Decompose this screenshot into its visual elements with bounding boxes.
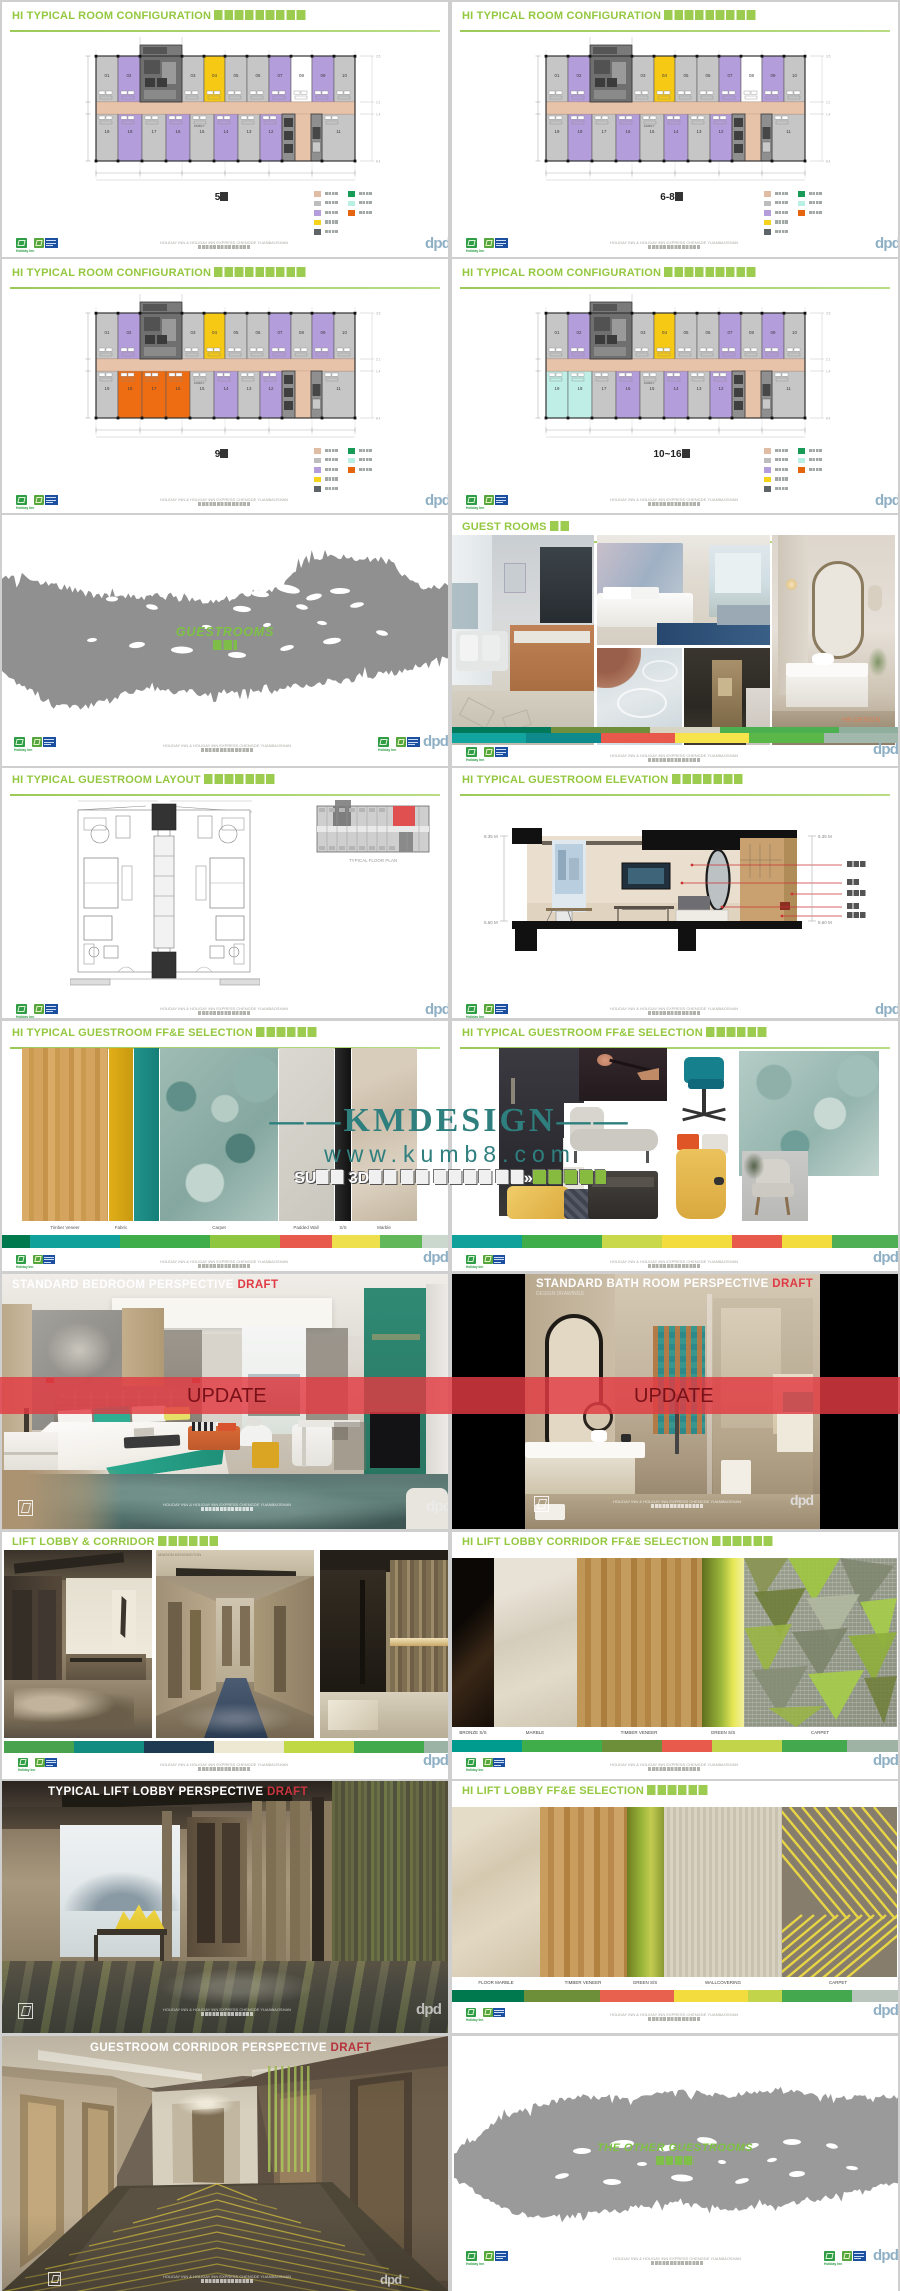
svg-text:15: 15 (200, 386, 205, 391)
svg-text:05: 05 (684, 330, 689, 335)
svg-text:12: 12 (269, 386, 274, 391)
svg-text:18: 18 (128, 129, 133, 134)
svg-text:2.1: 2.1 (376, 358, 381, 362)
svg-text:07: 07 (728, 73, 733, 78)
svg-text:13: 13 (247, 386, 252, 391)
svg-text:01: 01 (555, 330, 560, 335)
svg-text:3.5: 3.5 (376, 312, 381, 316)
svg-text:1.4: 1.4 (826, 113, 831, 117)
svg-text:10: 10 (342, 330, 347, 335)
svg-text:07: 07 (728, 330, 733, 335)
svg-text:8.4: 8.4 (826, 160, 831, 164)
svg-text:08: 08 (299, 330, 304, 335)
svg-text:04: 04 (662, 330, 667, 335)
svg-text:15: 15 (200, 129, 205, 134)
svg-text:06: 06 (706, 330, 711, 335)
svg-text:06: 06 (706, 73, 711, 78)
svg-text:17: 17 (602, 129, 607, 134)
svg-text:FAMILY: FAMILY (194, 381, 204, 385)
svg-text:18: 18 (578, 129, 583, 134)
svg-text:FAMILY: FAMILY (644, 381, 654, 385)
svg-text:02: 02 (577, 330, 582, 335)
svg-text:14: 14 (224, 386, 229, 391)
svg-text:08: 08 (749, 330, 754, 335)
svg-text:10: 10 (792, 73, 797, 78)
svg-text:17: 17 (152, 129, 157, 134)
svg-text:14: 14 (674, 129, 679, 134)
svg-text:04: 04 (662, 73, 667, 78)
svg-text:12: 12 (719, 386, 724, 391)
svg-text:1.4: 1.4 (376, 370, 381, 374)
svg-text:17: 17 (602, 386, 607, 391)
svg-text:TYPICAL FLOOR PLAN: TYPICAL FLOOR PLAN (349, 858, 397, 863)
svg-text:3.5: 3.5 (826, 55, 831, 59)
svg-text:13: 13 (697, 129, 702, 134)
svg-text:08: 08 (299, 73, 304, 78)
svg-text:10: 10 (792, 330, 797, 335)
svg-text:09: 09 (771, 73, 776, 78)
svg-text:19: 19 (555, 129, 560, 134)
svg-text:5.60 M: 5.60 M (484, 920, 498, 925)
svg-text:11: 11 (786, 386, 791, 391)
svg-text:16: 16 (626, 129, 631, 134)
svg-text:FAMILY: FAMILY (644, 124, 654, 128)
svg-text:03: 03 (191, 330, 196, 335)
svg-text:02: 02 (127, 330, 132, 335)
svg-text:11: 11 (336, 386, 341, 391)
svg-text:15: 15 (650, 129, 655, 134)
svg-text:19: 19 (105, 386, 110, 391)
svg-text:8.35 M: 8.35 M (818, 834, 832, 839)
svg-text:09: 09 (321, 73, 326, 78)
svg-text:03: 03 (641, 330, 646, 335)
svg-text:FAMILY: FAMILY (194, 124, 204, 128)
svg-text:19: 19 (555, 386, 560, 391)
svg-text:8.4: 8.4 (826, 417, 831, 421)
svg-text:02: 02 (577, 73, 582, 78)
svg-text:11: 11 (786, 129, 791, 134)
svg-text:1.4: 1.4 (826, 370, 831, 374)
svg-text:01: 01 (105, 73, 110, 78)
svg-text:16: 16 (176, 129, 181, 134)
svg-text:03: 03 (191, 73, 196, 78)
svg-text:3.5: 3.5 (826, 312, 831, 316)
svg-text:05: 05 (234, 73, 239, 78)
svg-text:2.1: 2.1 (376, 101, 381, 105)
svg-text:12: 12 (269, 129, 274, 134)
svg-text:18: 18 (578, 386, 583, 391)
svg-text:05: 05 (684, 73, 689, 78)
svg-text:03: 03 (641, 73, 646, 78)
svg-text:01: 01 (555, 73, 560, 78)
svg-text:07: 07 (278, 330, 283, 335)
svg-text:09: 09 (771, 330, 776, 335)
svg-text:8.4: 8.4 (376, 417, 381, 421)
svg-text:15: 15 (650, 386, 655, 391)
svg-text:04: 04 (212, 73, 217, 78)
svg-text:13: 13 (247, 129, 252, 134)
svg-text:07: 07 (278, 73, 283, 78)
svg-text:8.4: 8.4 (376, 160, 381, 164)
svg-text:14: 14 (224, 129, 229, 134)
svg-text:12: 12 (719, 129, 724, 134)
svg-text:02: 02 (127, 73, 132, 78)
svg-text:13: 13 (697, 386, 702, 391)
svg-text:06: 06 (256, 73, 261, 78)
svg-text:17: 17 (152, 386, 157, 391)
svg-text:09: 09 (321, 330, 326, 335)
svg-text:18: 18 (128, 386, 133, 391)
svg-text:01: 01 (105, 330, 110, 335)
svg-text:16: 16 (176, 386, 181, 391)
svg-text:05: 05 (234, 330, 239, 335)
svg-text:2.1: 2.1 (826, 358, 831, 362)
svg-text:5.60 M: 5.60 M (818, 920, 832, 925)
svg-text:19: 19 (105, 129, 110, 134)
svg-text:16: 16 (626, 386, 631, 391)
svg-text:11: 11 (336, 129, 341, 134)
svg-text:2.1: 2.1 (826, 101, 831, 105)
svg-text:8.35 M: 8.35 M (484, 834, 498, 839)
svg-text:06: 06 (256, 330, 261, 335)
svg-text:3.5: 3.5 (376, 55, 381, 59)
svg-text:14: 14 (674, 386, 679, 391)
svg-text:04: 04 (212, 330, 217, 335)
svg-text:08: 08 (749, 73, 754, 78)
svg-text:10: 10 (342, 73, 347, 78)
svg-text:1.4: 1.4 (376, 113, 381, 117)
